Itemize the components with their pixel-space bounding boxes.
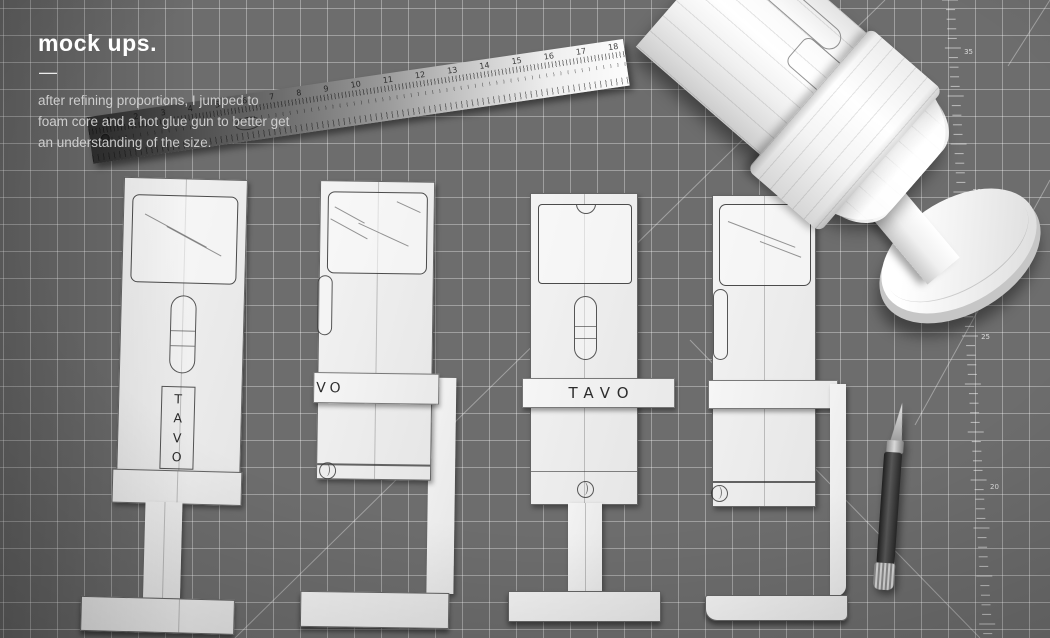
stand-foot (300, 591, 449, 629)
mockup-body (712, 195, 816, 507)
paper-mockup-side: VO (300, 180, 464, 630)
ruler-inch-number: 11 (382, 75, 393, 85)
tavo-letter: A (173, 411, 182, 426)
side-button-profile (317, 275, 333, 335)
knife-blade (890, 402, 905, 443)
fold-line (713, 481, 815, 483)
paper-mockup-front: T A V O (80, 176, 252, 638)
tavo-band: VO (313, 372, 439, 405)
title-divider: — (39, 63, 289, 81)
ruler-inch-number: 12 (414, 70, 425, 80)
tavo-band-text: VO (316, 380, 345, 396)
pencil-line (575, 326, 596, 327)
cutting-mat-photo: 35302520 123456789101112131415161718 T A… (0, 0, 1050, 638)
mockup-screen (538, 204, 632, 284)
page-title: mock ups. (38, 30, 289, 57)
ruler-inch-number: 17 (575, 46, 586, 56)
caption-overlay: mock ups. — after refining proportions, … (38, 30, 289, 154)
side-button-profile (713, 289, 728, 360)
description-line: foam core and a hot glue gun to better g… (38, 112, 289, 133)
bracket-foot (705, 595, 848, 621)
pencil-shading-line (358, 223, 408, 247)
ruler-inch-number: 15 (511, 56, 522, 66)
tavo-band: TAVO (522, 378, 675, 408)
ruler-inch-number: 14 (479, 61, 490, 71)
paper-mockup-side-bracket (690, 192, 860, 632)
pencil-shading-line (760, 241, 801, 258)
tavo-letter: O (172, 449, 182, 464)
pencil-logo-circle (577, 481, 594, 498)
mockup-screen (130, 194, 238, 285)
mat-scale-number: 20 (990, 483, 999, 491)
stand-foot (508, 591, 661, 622)
ruler-inch-number: 8 (296, 88, 302, 98)
pencil-shading-line (335, 206, 365, 223)
ruler-inch-number: 9 (323, 84, 329, 94)
pencil-logo-circle (319, 462, 336, 479)
paper-mockup-front-band: TAVO (508, 193, 662, 623)
ruler-inch-number: 18 (608, 42, 619, 52)
ruler-inch-number: 16 (543, 51, 554, 61)
pencil-shading-line (166, 226, 221, 256)
stand-stem (143, 501, 183, 598)
pencil-logo-circle (711, 485, 728, 502)
tavo-band-text: TAVO (568, 384, 635, 402)
pencil-centerline (585, 503, 586, 591)
mat-scale-number: 25 (981, 333, 990, 341)
tavo-vertical-label: T A V O (159, 386, 195, 470)
mockup-button-pill (574, 296, 597, 360)
pencil-centerline (178, 599, 180, 632)
mockup-body (316, 180, 435, 481)
knife-handle (876, 452, 902, 565)
pencil-centerline (162, 502, 166, 598)
description-line: an understanding of the size. (38, 133, 289, 154)
pencil-shading-line (728, 221, 796, 248)
tavo-letter: V (173, 430, 182, 445)
pencil-centerline (176, 471, 178, 503)
knife-end-cap (873, 562, 896, 590)
bracket-vertical (830, 384, 846, 596)
mat-scale-number: 35 (964, 48, 973, 56)
ruler-inch-number: 13 (447, 65, 458, 75)
stand-stem (568, 503, 602, 591)
pencil-line (171, 330, 195, 332)
pencil-shading-line (397, 201, 421, 213)
ruler-inch-number: 10 (350, 79, 361, 89)
pencil-line (171, 345, 195, 347)
tavo-band-back (708, 380, 838, 409)
mockup-body (530, 193, 638, 505)
stand-shoulder (111, 469, 242, 506)
mockup-screen (327, 191, 428, 274)
screen-notch (576, 204, 596, 214)
stand-foot (80, 596, 235, 635)
mockup-body: T A V O (116, 177, 248, 474)
tavo-letter: T (174, 391, 182, 406)
mockup-button-pill (169, 295, 197, 374)
mockup-screen (719, 204, 811, 286)
pencil-line (575, 338, 596, 339)
description-line: after refining proportions, I jumped to (38, 91, 289, 112)
fold-line (531, 471, 637, 472)
